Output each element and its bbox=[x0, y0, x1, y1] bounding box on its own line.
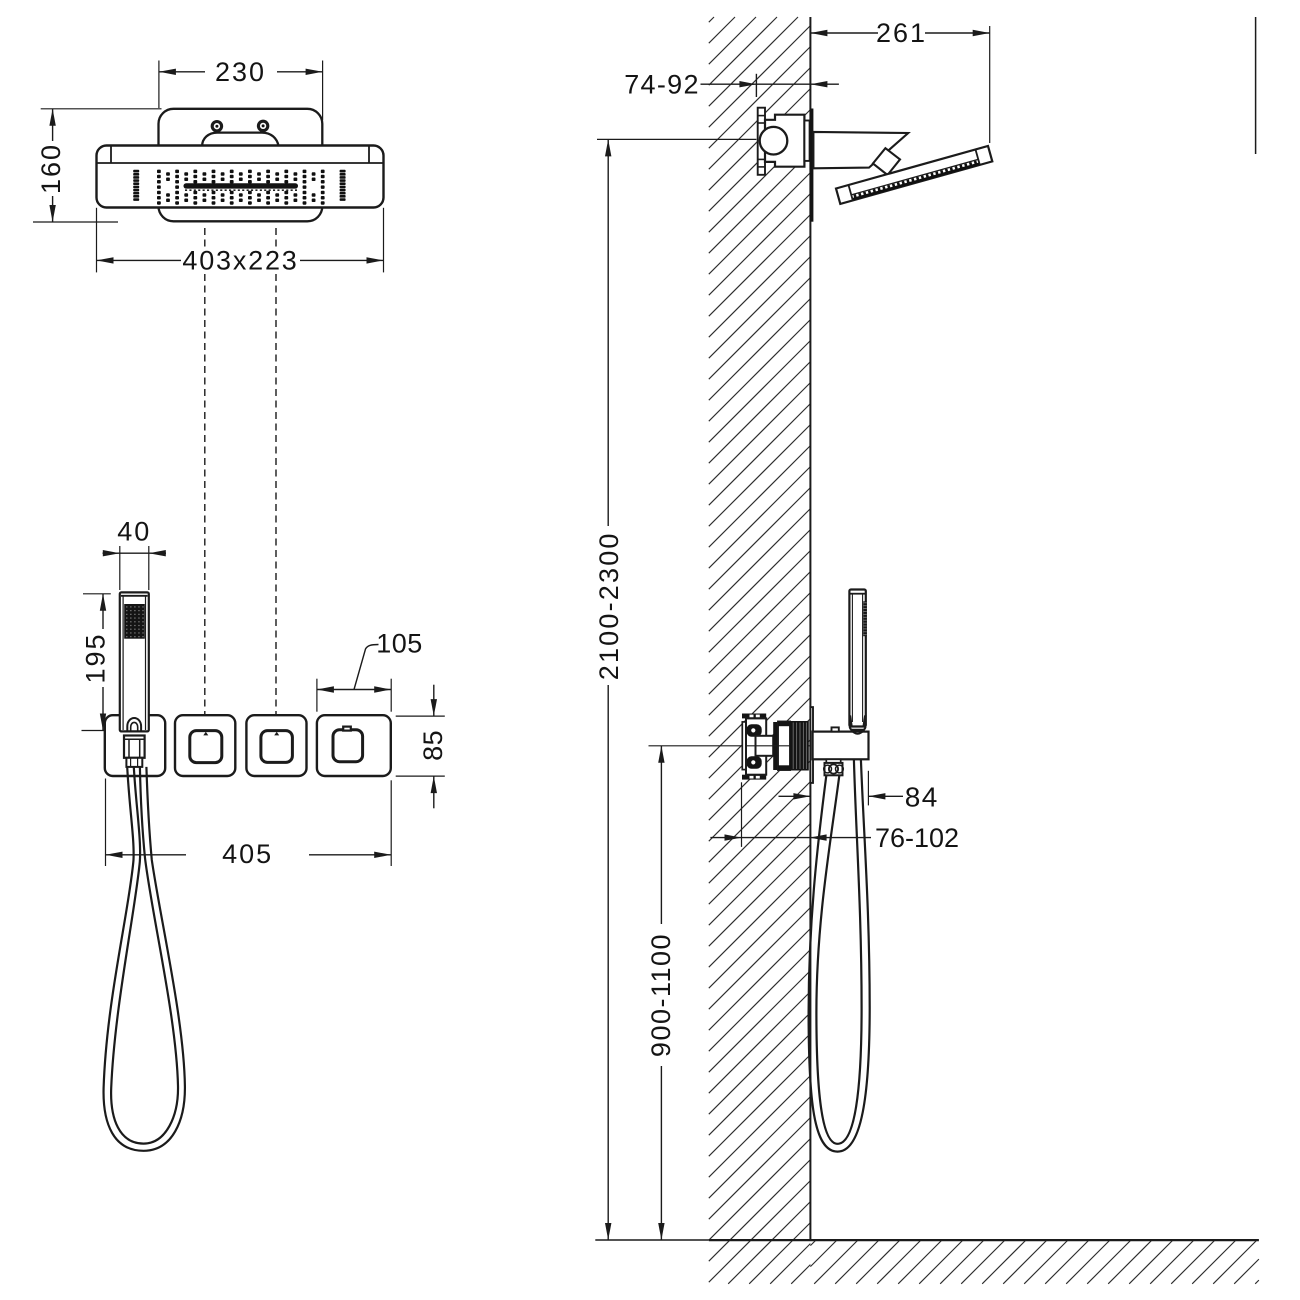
svg-text:230: 230 bbox=[215, 57, 266, 87]
svg-text:74-92: 74-92 bbox=[624, 69, 700, 99]
svg-text:405: 405 bbox=[222, 839, 273, 869]
svg-text:261: 261 bbox=[876, 18, 927, 48]
svg-text:76-102: 76-102 bbox=[875, 823, 959, 853]
svg-text:403x223: 403x223 bbox=[182, 246, 298, 276]
svg-text:160: 160 bbox=[36, 143, 66, 194]
svg-text:40: 40 bbox=[117, 517, 151, 547]
svg-text:195: 195 bbox=[80, 632, 110, 683]
svg-text:85: 85 bbox=[418, 730, 448, 761]
svg-text:2100-2300: 2100-2300 bbox=[594, 531, 624, 680]
svg-text:84: 84 bbox=[905, 781, 939, 812]
svg-text:900-1100: 900-1100 bbox=[646, 933, 676, 1057]
svg-text:105: 105 bbox=[376, 628, 423, 658]
